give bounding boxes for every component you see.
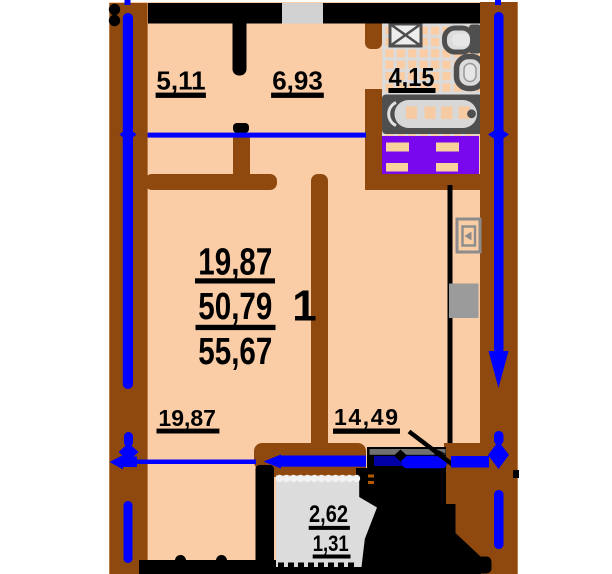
svg-text:1: 1 [292, 282, 316, 331]
svg-text:19,87: 19,87 [158, 405, 216, 431]
svg-text:14,49: 14,49 [334, 404, 398, 430]
svg-text:6,93: 6,93 [272, 66, 323, 96]
svg-text:2,62: 2,62 [309, 501, 348, 528]
svg-text:5,11: 5,11 [156, 66, 205, 96]
svg-text:55,67: 55,67 [198, 331, 272, 373]
svg-text:19,87: 19,87 [198, 241, 272, 283]
svg-text:50,79: 50,79 [198, 286, 272, 328]
svg-text:1,31: 1,31 [313, 531, 349, 556]
svg-text:4,15: 4,15 [389, 62, 435, 92]
